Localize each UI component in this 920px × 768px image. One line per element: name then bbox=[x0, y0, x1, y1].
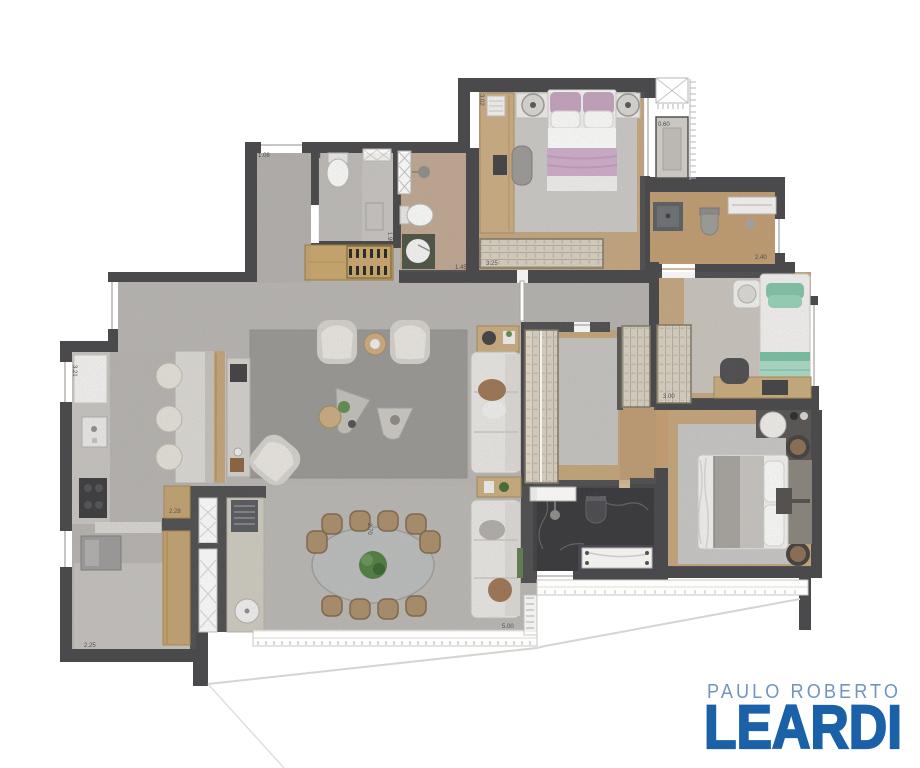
svg-text:LEARDI: LEARDI bbox=[704, 693, 902, 761]
svg-text:1.22: 1.22 bbox=[588, 493, 600, 499]
svg-text:0.60: 0.60 bbox=[658, 122, 670, 128]
svg-text:2.65: 2.65 bbox=[669, 568, 681, 574]
